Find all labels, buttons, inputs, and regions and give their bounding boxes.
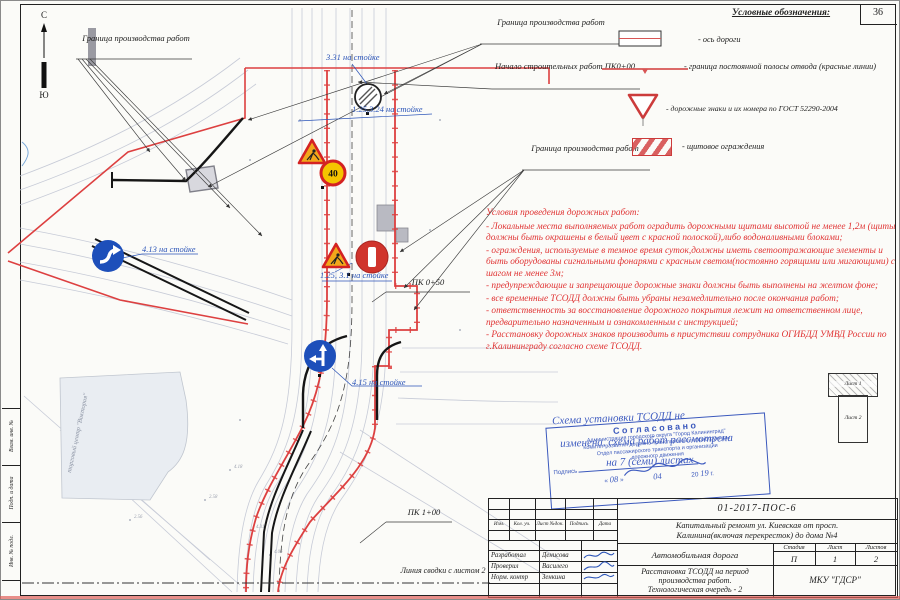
compass: С Ю — [32, 10, 56, 100]
stamp-quote: « — [604, 478, 608, 485]
svg-text:2.58: 2.58 — [209, 495, 218, 500]
scanned-drawing-page: { "page": { "sheet_number": "36" }, "com… — [0, 0, 900, 600]
document-number: 01-2017-ПОС-6 — [617, 503, 897, 514]
legend-item-label: - щитовое ограждения — [682, 142, 882, 152]
legend-title: Условные обозначения: — [696, 8, 866, 18]
sheet-index-sheet1-label: Лист 1 — [829, 381, 877, 387]
project-name-line1: Капитальный ремонт ул. Киевская от просп… — [621, 521, 893, 530]
tb-col-podpis: Подпись — [565, 521, 593, 527]
sign-3-1-no-entry — [356, 241, 388, 273]
black-barrier-lines — [92, 118, 401, 592]
sheet-index-sheet2: Лист 2 — [838, 395, 868, 443]
road-axis-line — [279, 10, 352, 592]
tb-role-name: Зенкина — [542, 574, 582, 581]
tb-col-list-doc: Лист №док. — [535, 521, 565, 527]
tb-col-izm: Изм. — [489, 521, 509, 527]
sheet-title-line1: Расстановка ТСОДД на период — [617, 567, 773, 576]
organization-name: МКУ "ГДСР" — [773, 575, 897, 585]
pk-0-50-label: ПК 0+50 — [398, 278, 458, 288]
stage-value: П — [773, 554, 815, 564]
sheets-label: Листов — [855, 544, 897, 551]
compass-south-label: Ю — [32, 90, 56, 100]
tb-role-name: Василего — [542, 563, 582, 570]
stamp-day-handwritten: 08 — [609, 474, 618, 485]
legend-item-label: - дорожные знаки и их номера по ГОСТ 522… — [666, 104, 892, 113]
street-network-lines — [20, 8, 560, 592]
boundary-callout-left: Граница производства работ — [80, 34, 192, 44]
tb-role-name: Денисова — [542, 552, 582, 559]
legend-item-label: - граница постоянной полосы отвода (крас… — [684, 62, 892, 72]
title-block: Изм. Кол. уч. Лист №док. Подпись Дата Ра… — [488, 498, 898, 598]
building-block — [396, 228, 408, 242]
sheet-title-line3: Технологическая очередь - 2 — [617, 585, 773, 594]
red-boundary-lines — [8, 68, 549, 592]
sign-125-324-label: 1.25,3.24 на стойке — [352, 104, 423, 114]
stamp-signature-label: Подпись — [553, 469, 577, 477]
tb-col-data: Дата — [593, 521, 617, 527]
sheet-index-sheet1: Лист 1 — [828, 373, 878, 397]
svg-text:4.06: 4.06 — [274, 550, 283, 555]
condition-item: - Расстановку дорожных знаков производит… — [486, 330, 898, 353]
legend: Условные обозначения: - ось дороги - гра… — [596, 4, 896, 174]
match-line-label: Линия сводки с листом 2 — [388, 566, 498, 575]
sign-1-25-roadworks — [299, 140, 325, 163]
stream-line — [22, 142, 28, 166]
tb-col-kol: Кол. уч. — [509, 521, 535, 527]
scan-edge-artifact — [0, 596, 900, 599]
sign-125-31-label: 1.25, 3.1 на стойке — [320, 270, 388, 280]
sign-415-label: 4.15 на стойке — [352, 377, 406, 387]
svg-text:4.31: 4.31 — [256, 525, 264, 530]
condition-item: - предупреждающие и запрещающие дорожные… — [486, 281, 898, 293]
condition-item: - Локальные места выполняемых работ огра… — [486, 222, 898, 245]
sign-4-1-3-turn-left — [92, 240, 124, 272]
sheets-value: 2 — [855, 554, 897, 564]
sheet-index-sheet2-label: Лист 2 — [839, 415, 867, 421]
sign-331-label: 3.31 на стойке — [326, 52, 380, 62]
signature-scribble — [582, 572, 616, 584]
shield-fence-symbol — [632, 138, 672, 156]
svg-text:40: 40 — [328, 169, 338, 179]
red-boundary-symbol — [602, 64, 688, 76]
sheet-label: Лист — [815, 544, 855, 551]
tb-role: Норм. контр — [491, 574, 539, 581]
svg-text:2.56: 2.56 — [134, 515, 143, 520]
sheet-value: 1 — [815, 554, 855, 564]
tb-role: Проверил — [491, 563, 539, 570]
road-axis-symbol — [618, 30, 662, 48]
survey-point-marks — [129, 119, 461, 556]
project-name-line2: Калинина(включая перекресток) до дома №4 — [621, 531, 893, 540]
sheet-title-line2: производства работ. — [617, 576, 773, 585]
boundary-left-lower — [8, 261, 248, 324]
sign-413-label: 4.13 на стойке — [142, 244, 196, 254]
pk-1-00-label: ПК 1+00 — [394, 508, 454, 518]
building-block — [377, 205, 395, 231]
road-works-conditions: Условия проведения дорожных работ: - Лок… — [486, 208, 898, 354]
svg-text:4.18: 4.18 — [234, 465, 243, 470]
condition-item: - все временные ТСОДД должны быть убраны… — [486, 294, 898, 306]
stamp-year-suffix: г. — [710, 470, 714, 477]
object-name: Автомобильная дорога — [617, 550, 773, 560]
tb-role: Разработал — [491, 552, 539, 559]
sign-4-1-5-straight-or-left — [304, 340, 336, 372]
legend-item-label: - ось дороги — [698, 35, 888, 45]
compass-north-label: С — [32, 10, 56, 20]
condition-item: - ответственность за восстановление доро… — [486, 306, 898, 329]
condition-item: - ограждения, используемые в темное врем… — [486, 246, 898, 281]
stage-label: Стадия — [773, 544, 815, 551]
conditions-title: Условия проведения дорожных работ: — [486, 208, 898, 220]
sign-3-24-speed-limit-40: 40 — [321, 161, 345, 185]
compass-arrow — [32, 22, 56, 100]
road-sign-triangle-symbol — [626, 92, 660, 128]
